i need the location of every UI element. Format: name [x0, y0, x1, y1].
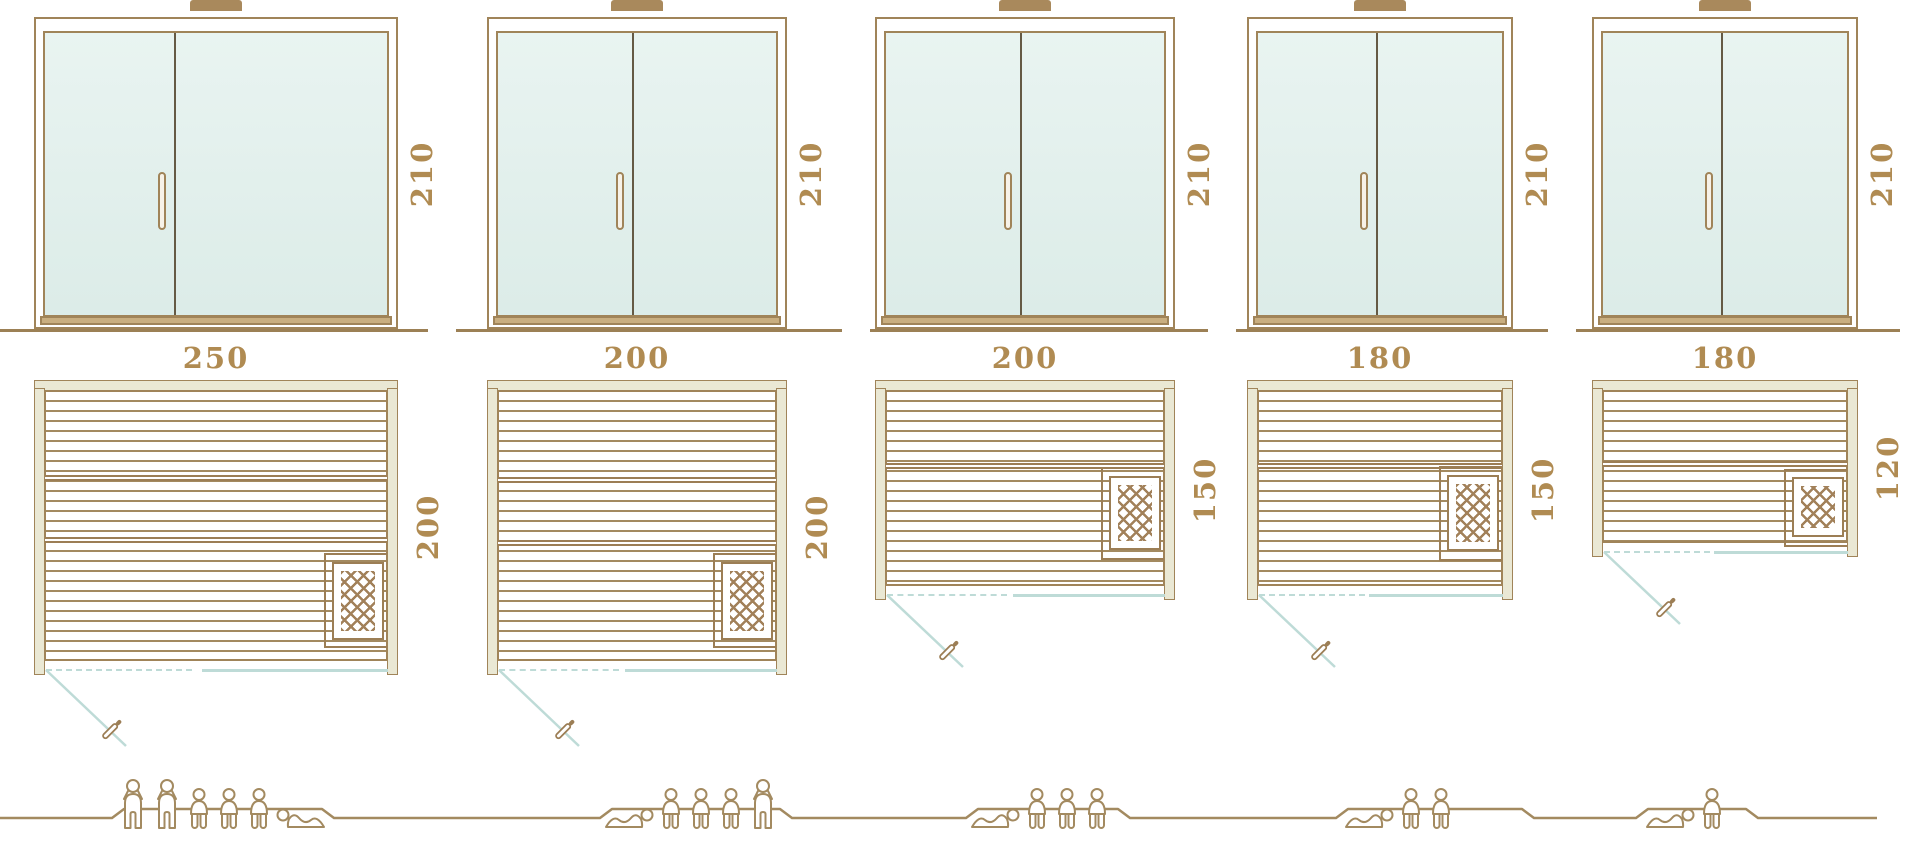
person-seated-icon	[1428, 788, 1454, 830]
front-glass-line	[202, 669, 388, 672]
bench-edge-line	[1602, 461, 1848, 467]
depth-label: 200	[413, 487, 443, 567]
door-sill	[1598, 316, 1852, 325]
plan-right-wall	[1502, 388, 1513, 600]
plan-right-wall	[776, 388, 787, 675]
depth-label: 200	[802, 487, 832, 567]
height-label: 210	[1184, 134, 1214, 214]
bench-edge-line	[497, 477, 777, 483]
plan-left-wall	[487, 388, 498, 675]
sauna-variant-4: 180 210 150	[1247, 0, 1513, 856]
plan-view	[1592, 380, 1858, 557]
person-standing-icon	[152, 778, 182, 830]
bench-edge-line	[44, 537, 388, 543]
door-sill	[881, 316, 1169, 325]
person-seated-icon	[688, 788, 714, 830]
capacity-figures	[970, 776, 1110, 830]
plan-back-wall	[34, 380, 398, 391]
ground-line	[870, 329, 1208, 332]
plan-left-wall	[1247, 388, 1258, 600]
height-label: 210	[796, 134, 826, 214]
door-glass	[496, 31, 778, 317]
ground-line	[456, 329, 842, 332]
ground-line	[0, 329, 428, 332]
roof-cap	[190, 0, 242, 11]
door-sill	[1253, 316, 1507, 325]
door-handle-icon	[1360, 172, 1368, 230]
sauna-variant-1: 250 210 200	[34, 0, 398, 856]
roof-cap	[1699, 0, 1751, 11]
door-elevation	[875, 17, 1175, 329]
plan-right-wall	[1847, 388, 1858, 557]
person-lying-icon	[276, 806, 326, 830]
door-sill	[40, 316, 392, 325]
heater-icon	[1447, 475, 1499, 551]
plan-back-wall	[1592, 380, 1858, 391]
door-elevation	[34, 17, 398, 329]
heater-icon	[332, 562, 384, 640]
heater-icon	[1792, 477, 1844, 537]
height-label: 210	[1867, 134, 1897, 214]
plan-view	[1247, 380, 1513, 600]
door-divider-line	[632, 33, 634, 315]
front-glass-line	[1013, 594, 1165, 597]
capacity-figures	[604, 776, 778, 830]
door-divider-line	[1376, 33, 1378, 315]
door-divider-line	[1721, 33, 1723, 315]
person-seated-icon	[1699, 788, 1725, 830]
door-sill	[493, 316, 781, 325]
front-glass-line	[1369, 594, 1503, 597]
depth-label: 120	[1873, 428, 1903, 508]
person-standing-icon	[118, 778, 148, 830]
plan-view	[34, 380, 398, 675]
sauna-variant-2: 200 210 200	[487, 0, 787, 856]
person-standing-icon	[748, 778, 778, 830]
person-seated-icon	[186, 788, 212, 830]
bench-edge-line	[497, 540, 777, 546]
door-handle-icon	[1004, 172, 1012, 230]
door-swing-icon	[875, 592, 1005, 687]
door-divider-line	[174, 33, 176, 315]
plan-left-wall	[1592, 388, 1603, 557]
plan-back-wall	[875, 380, 1175, 391]
person-seated-icon	[1024, 788, 1050, 830]
plan-back-wall	[487, 380, 787, 391]
door-glass	[43, 31, 389, 317]
roof-cap	[611, 0, 663, 11]
width-label: 200	[487, 341, 787, 375]
person-lying-icon	[1344, 806, 1394, 830]
heater-hatch	[341, 571, 375, 631]
heater-icon	[1109, 476, 1161, 550]
door-glass	[1601, 31, 1849, 317]
person-lying-icon	[604, 806, 654, 830]
plan-right-wall	[1164, 388, 1175, 600]
width-label: 200	[875, 341, 1175, 375]
height-label: 210	[407, 134, 437, 214]
heater-hatch	[1118, 485, 1152, 541]
roof-cap	[1354, 0, 1406, 11]
door-elevation	[1247, 17, 1513, 329]
plan-right-wall	[387, 388, 398, 675]
width-label: 250	[34, 341, 398, 375]
person-lying-icon	[970, 806, 1020, 830]
person-seated-icon	[216, 788, 242, 830]
height-label: 210	[1522, 134, 1552, 214]
ground-line	[1576, 329, 1900, 332]
person-seated-icon	[1084, 788, 1110, 830]
door-swing-icon	[1592, 549, 1722, 644]
plan-view	[875, 380, 1175, 600]
front-glass-line	[625, 669, 777, 672]
depth-label: 150	[1528, 450, 1558, 530]
plan-back-wall	[1247, 380, 1513, 391]
depth-label: 150	[1190, 450, 1220, 530]
width-label: 180	[1247, 341, 1513, 375]
width-label: 180	[1592, 341, 1858, 375]
heater-hatch	[1456, 484, 1490, 542]
door-glass	[884, 31, 1166, 317]
door-handle-icon	[616, 172, 624, 230]
plan-left-wall	[875, 388, 886, 600]
door-glass	[1256, 31, 1504, 317]
person-seated-icon	[658, 788, 684, 830]
sauna-variant-3: 200 210 150	[875, 0, 1175, 856]
sauna-variant-5: 180 210 120	[1592, 0, 1858, 856]
person-seated-icon	[718, 788, 744, 830]
front-glass-line	[1714, 551, 1848, 554]
heater-hatch	[730, 571, 764, 631]
heater-hatch	[1801, 486, 1835, 528]
person-seated-icon	[1398, 788, 1424, 830]
door-swing-icon	[1247, 592, 1377, 687]
door-handle-icon	[158, 172, 166, 230]
person-seated-icon	[246, 788, 272, 830]
roof-cap	[999, 0, 1051, 11]
door-elevation	[487, 17, 787, 329]
bench-edge-line	[44, 475, 388, 481]
person-lying-icon	[1645, 806, 1695, 830]
door-divider-line	[1020, 33, 1022, 315]
capacity-figures	[1344, 776, 1454, 830]
plan-left-wall	[34, 388, 45, 675]
heater-icon	[721, 562, 773, 640]
door-elevation	[1592, 17, 1858, 329]
door-handle-icon	[1705, 172, 1713, 230]
sauna-size-comparison-diagram: 250 210 200	[0, 0, 1920, 856]
ground-line	[1236, 329, 1548, 332]
capacity-figures	[1645, 776, 1725, 830]
plan-view	[487, 380, 787, 675]
person-seated-icon	[1054, 788, 1080, 830]
capacity-figures	[118, 776, 326, 830]
